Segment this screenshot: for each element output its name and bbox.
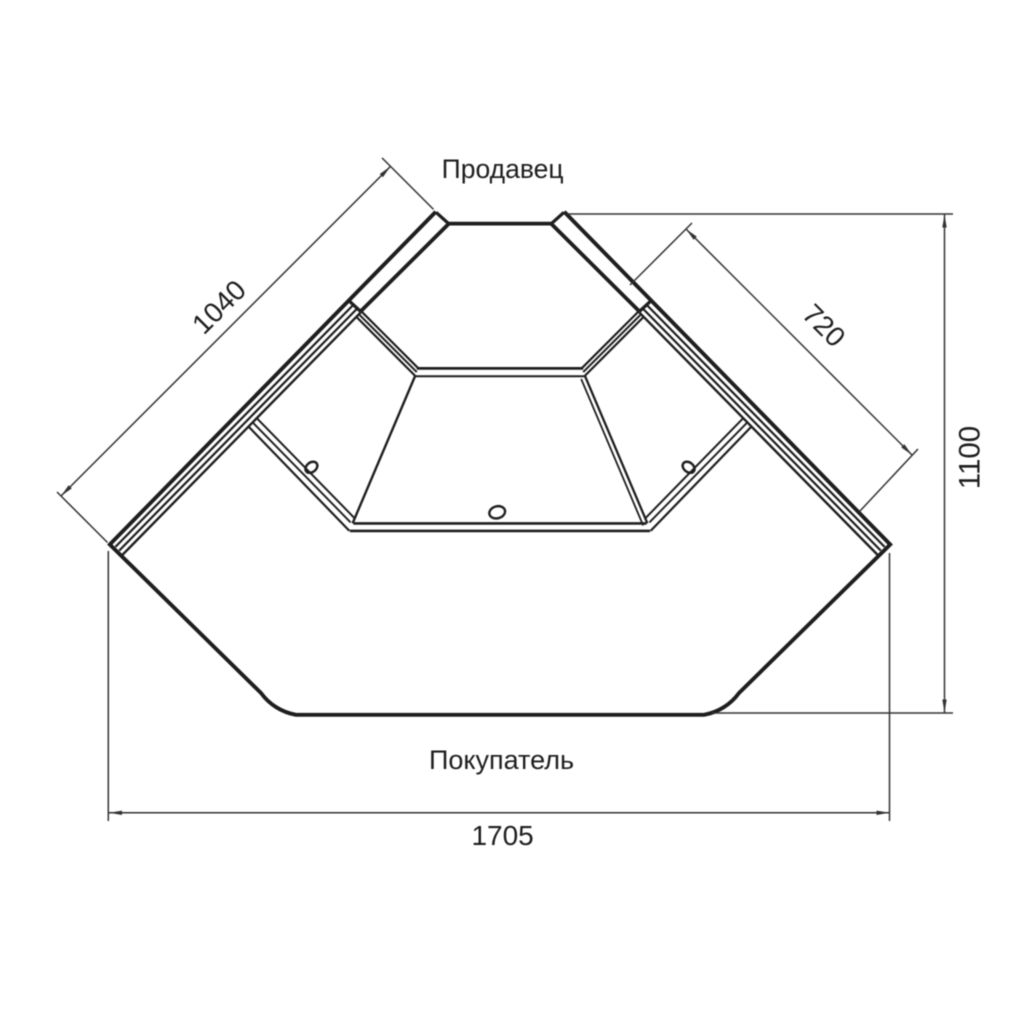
svg-text:1705: 1705: [471, 820, 533, 851]
svg-text:Покупатель: Покупатель: [429, 745, 574, 775]
svg-text:1100: 1100: [953, 426, 986, 489]
svg-text:Продавец: Продавец: [442, 154, 564, 184]
